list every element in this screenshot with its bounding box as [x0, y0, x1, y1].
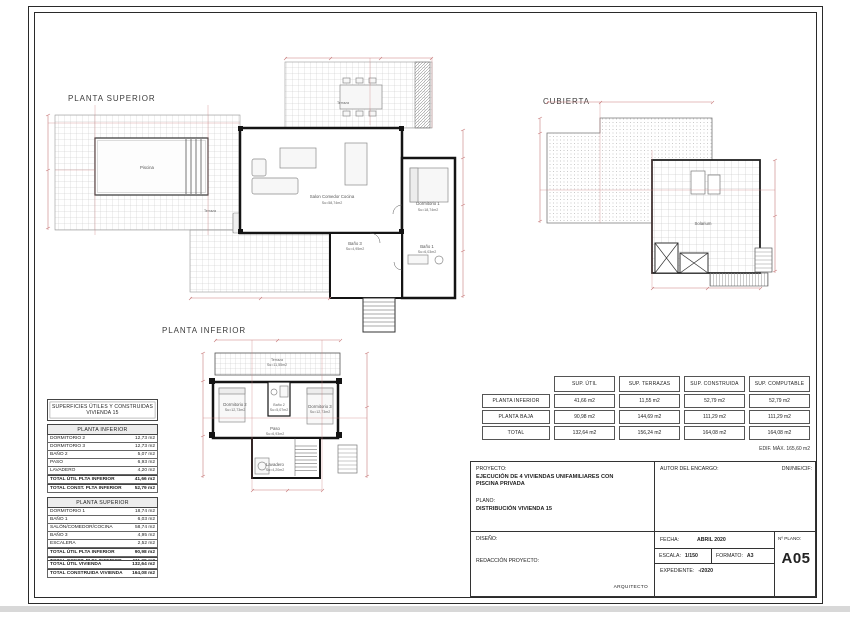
formato-cell: FORMATO: A3	[712, 549, 774, 563]
salon-label: Salon Comedor Cocina	[310, 194, 355, 199]
formato-label: FORMATO:	[716, 553, 743, 559]
table-row: BAÑO 25,07 m2	[47, 451, 158, 459]
paso-label: Paso	[270, 426, 280, 431]
table-row: BAÑO 16,03 m2	[47, 516, 158, 524]
edif-max-note: EDIF. MÁX. 165,60 m2	[478, 446, 810, 452]
autor-cell: AUTOR DEL ENCARGO: DNI/NIE/CIF:	[655, 462, 817, 531]
diseno-label: DISEÑO:	[476, 536, 649, 542]
proyecto-label: PROYECTO:	[476, 466, 649, 472]
outdoor-table	[340, 85, 382, 109]
table-total-row: TOTAL ÚTIL PLTA INFERIOR90,98 m2	[47, 548, 158, 557]
bano2-area: Su=5,07m2	[270, 408, 288, 412]
table-row: ESCALERA2,52 m2	[47, 540, 158, 548]
title-block: PROYECTO: EJECUCIÓN DE 4 VIVIENDAS UNIFA…	[470, 461, 816, 597]
table-row: DORMITORIO 118,74 m2	[47, 508, 158, 516]
col-sup-computable: SUP. COMPUTABLE	[749, 376, 810, 392]
dormitorio2-area: Su=12,73m2	[225, 408, 245, 412]
num-plano-label: Nº PLANO:	[778, 536, 801, 541]
table-total-row: TOTAL CONST. PLTA INFERIOR52,79 m2	[47, 484, 158, 493]
table-header: PLANTA INFERIOR	[47, 424, 158, 435]
lavadero-area: Su=4,20m2	[266, 468, 284, 472]
fecha-value: ABRIL 2020	[697, 537, 726, 543]
arquitecto-label: ARQUITECTO	[614, 585, 648, 590]
table-row: DORMITORIO 212,73 m2	[47, 435, 158, 443]
summary-row-total: TOTAL 132,64 m2 156,24 m2 164,08 m2 164,…	[482, 426, 810, 440]
superficies-title-box: SUPERFICIES ÚTILES Y CONSTRUIDAS VIVIEND…	[47, 399, 158, 421]
table-row: BAÑO 34,95 m2	[47, 532, 158, 540]
toilet	[280, 386, 288, 397]
lavadero-label: Lavadero	[266, 462, 285, 467]
dining-table	[280, 148, 316, 168]
roof-object	[691, 171, 705, 194]
sofa	[252, 178, 298, 194]
num-plano-cell: Nº PLANO: A05	[775, 532, 817, 598]
num-plano-value: A05	[775, 550, 817, 567]
dormitorio3-label: Dormitorio 3	[308, 404, 332, 409]
surface-summary-table: SUP. ÚTIL SUP. TERRAZAS SUP. CONSTRUIDA …	[478, 374, 814, 442]
paso-area: Su=6,93m2	[266, 432, 284, 436]
page-edge-shadow	[0, 606, 850, 612]
dormitorio1-area: Su=18,74m2	[418, 208, 438, 212]
superficies-title-line2: VIVIENDA 15	[48, 410, 157, 416]
col-sup-construida: SUP. CONSTRUIDA	[684, 376, 745, 392]
terraza-left-label: Terraza	[204, 209, 216, 213]
roof-object	[708, 175, 720, 194]
table-header: PLANTA SUPERIOR	[47, 497, 158, 508]
title-block-middle: FECHA: ABRIL 2020 ESCALA: 1/150 FORMATO:…	[655, 532, 775, 598]
solarium-label: Solarium	[695, 221, 712, 226]
terraza-label: Terraza	[271, 358, 283, 362]
redaccion-label: REDACCIÓN PROYECTO:	[476, 558, 649, 564]
kitchen-counter	[345, 143, 367, 185]
pool: Piscina	[95, 138, 208, 195]
col-sup-util: SUP. ÚTIL	[554, 376, 615, 392]
plano-value: DISTRIBUCIÓN VIVIENDA 15	[476, 506, 636, 513]
drawing-sheet: PLANTA SUPERIOR CUBIERTA PLANTA INFERIOR…	[0, 0, 850, 620]
col-sup-terrazas: SUP. TERRAZAS	[619, 376, 680, 392]
cubierta-plan: Solarium	[535, 90, 820, 300]
pergola-strip	[415, 62, 430, 128]
escala-value: 1/150	[685, 553, 698, 559]
bano2-label: Baño 2	[273, 403, 284, 407]
table-total-row: TOTAL ÚTIL VIVIENDA132,64 m2	[47, 560, 158, 569]
diseno-cell: DISEÑO: REDACCIÓN PROYECTO: ARQUITECTO	[471, 532, 655, 598]
expediente-cell: EXPEDIENTE: -/2020	[655, 564, 774, 598]
bath-fixture	[408, 255, 428, 264]
formato-value: A3	[747, 553, 754, 559]
escala-cell: ESCALA: 1/150	[655, 549, 712, 563]
escala-formato-row: ESCALA: 1/150 FORMATO: A3	[655, 549, 774, 564]
dormitorio3-area: Su=12,73m2	[310, 410, 330, 414]
salon-area: Su=58,74m2	[322, 201, 342, 205]
escala-label: ESCALA:	[659, 553, 681, 559]
dormitorio1-label: Dormitorio 1	[416, 201, 440, 206]
table-row: DORMITORIO 312,73 m2	[47, 443, 158, 451]
title-block-bottom: DISEÑO: REDACCIÓN PROYECTO: ARQUITECTO F…	[471, 532, 815, 598]
summary-header-row: SUP. ÚTIL SUP. TERRAZAS SUP. CONSTRUIDA …	[482, 376, 810, 392]
pool-label: Piscina	[140, 165, 154, 170]
dni-label: DNI/NIE/CIF:	[782, 466, 812, 472]
planta-superior-plan: Piscina	[40, 55, 470, 335]
table-total-row: TOTAL CONSTRUIDA VIVIENDA164,08 m2	[47, 569, 158, 578]
table-row: PASO6,93 m2	[47, 459, 158, 467]
dormitorio2-label: Dormitorio 2	[223, 402, 247, 407]
superficies-vivienda-totals: TOTAL ÚTIL VIVIENDA132,64 m2 TOTAL CONST…	[47, 560, 158, 578]
terraza-area: Su=11,55m2	[267, 363, 287, 367]
bano1-area: Su=6,03m2	[418, 250, 436, 254]
title-block-top: PROYECTO: EJECUCIÓN DE 4 VIVIENDAS UNIFA…	[471, 462, 815, 532]
table-total-row: TOTAL ÚTIL PLTA INFERIOR41,66 m2	[47, 475, 158, 484]
bano3-label: Baño 3	[348, 241, 362, 246]
bano3-area: Su=4,95m2	[346, 247, 364, 251]
proyecto-value: EJECUCIÓN DE 4 VIVIENDAS UNIFAMILIARES C…	[476, 474, 636, 487]
bano1-label: Baño 1	[420, 244, 434, 249]
planta-inferior-plan: Terraza Su=11,55m2 Dormitorio 2 Su=12,73…	[195, 318, 380, 503]
table-row: SALÓN/COMEDOR/COCINA58,74 m2	[47, 524, 158, 532]
table-row: LAVADERO4,20 m2	[47, 467, 158, 475]
summary-row-planta-baja: PLANTA BAJA 90,98 m2 144,69 m2 111,29 m2…	[482, 410, 810, 424]
summary-row-planta-inferior: PLANTA INFERIOR 41,66 m2 11,55 m2 52,79 …	[482, 394, 810, 408]
autor-label: AUTOR DEL ENCARGO:	[660, 466, 719, 472]
superficies-planta-inferior-table: PLANTA INFERIOR DORMITORIO 212,73 m2 DOR…	[47, 424, 158, 493]
terraza-top-label: Terraza	[337, 101, 349, 105]
fecha-cell: FECHA: ABRIL 2020	[655, 532, 774, 549]
expediente-label: EXPEDIENTE:	[660, 568, 694, 574]
superficies-planta-superior-table: PLANTA SUPERIOR DORMITORIO 118,74 m2 BAÑ…	[47, 497, 158, 566]
proyecto-cell: PROYECTO: EJECUCIÓN DE 4 VIVIENDAS UNIFA…	[471, 462, 655, 531]
plano-label: PLANO:	[476, 498, 649, 504]
fecha-label: FECHA:	[660, 537, 679, 543]
expediente-value: -/2020	[698, 568, 713, 574]
